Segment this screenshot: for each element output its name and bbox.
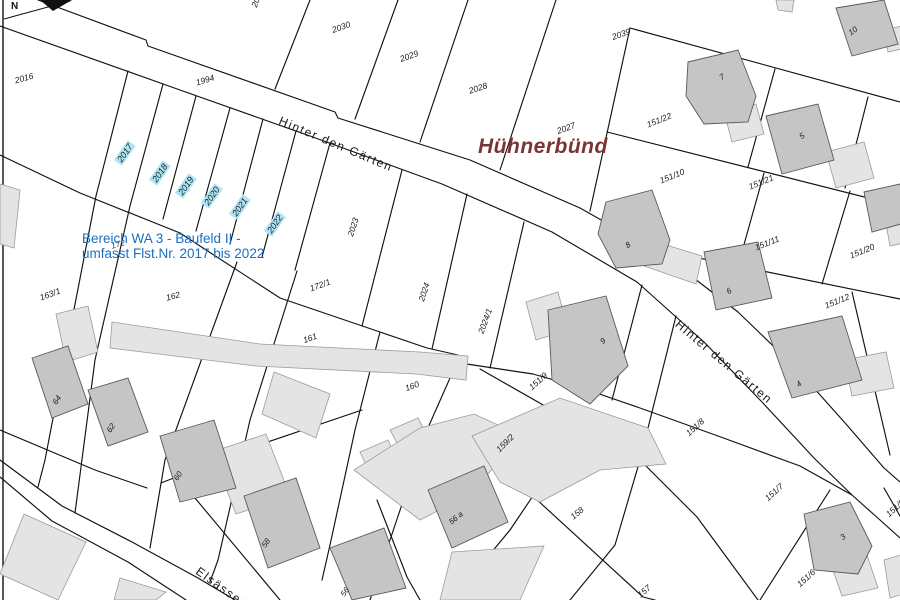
annotation-line-1: Bereich WA 3 - Baufeld II - bbox=[82, 231, 264, 246]
outbuilding bbox=[262, 372, 330, 438]
building bbox=[804, 502, 872, 574]
parcel-line bbox=[420, 0, 468, 142]
parcel-line bbox=[432, 194, 467, 349]
outbuilding bbox=[884, 554, 900, 598]
parcel-line bbox=[590, 28, 630, 211]
planning-annotation: Bereich WA 3 - Baufeld II - umfasst Flst… bbox=[82, 231, 264, 261]
outbuilding bbox=[440, 546, 544, 600]
building bbox=[598, 190, 670, 268]
building bbox=[686, 50, 756, 124]
parcel-line bbox=[163, 96, 196, 219]
parcel-line bbox=[96, 71, 128, 196]
parcel-line bbox=[295, 143, 330, 270]
parcel-line bbox=[355, 0, 398, 119]
building bbox=[548, 296, 628, 404]
outbuilding bbox=[826, 142, 874, 188]
north-letter: N bbox=[11, 1, 18, 12]
annotation-line-2: umfasst Flst.Nr. 2017 bis 2022 bbox=[82, 246, 264, 261]
parcel-line bbox=[570, 460, 640, 600]
outbuilding bbox=[0, 514, 86, 600]
parcel-line bbox=[640, 460, 758, 600]
parcel-line bbox=[822, 191, 850, 284]
parcel-line bbox=[490, 222, 524, 368]
building bbox=[160, 420, 236, 502]
building bbox=[704, 242, 772, 310]
building bbox=[864, 184, 900, 232]
parcel-line bbox=[362, 170, 402, 326]
outbuilding bbox=[110, 322, 468, 380]
parcel-line bbox=[196, 108, 230, 231]
parcel-line bbox=[150, 262, 237, 548]
building bbox=[766, 104, 834, 174]
building bbox=[768, 316, 862, 398]
place-name: Hühnerbünd bbox=[478, 135, 608, 159]
parcel-line bbox=[535, 498, 655, 600]
building bbox=[88, 378, 148, 446]
outbuilding bbox=[776, 0, 794, 12]
cadastral-map[interactable]: N 20161994203120302029202820272039151/22… bbox=[0, 0, 900, 600]
north-indicator: N bbox=[0, 0, 90, 40]
parcel-line bbox=[230, 119, 263, 244]
parcel-line bbox=[275, 0, 310, 89]
outbuilding bbox=[0, 184, 20, 248]
parcel-line bbox=[262, 131, 296, 257]
map-graphics-layer bbox=[0, 0, 900, 600]
